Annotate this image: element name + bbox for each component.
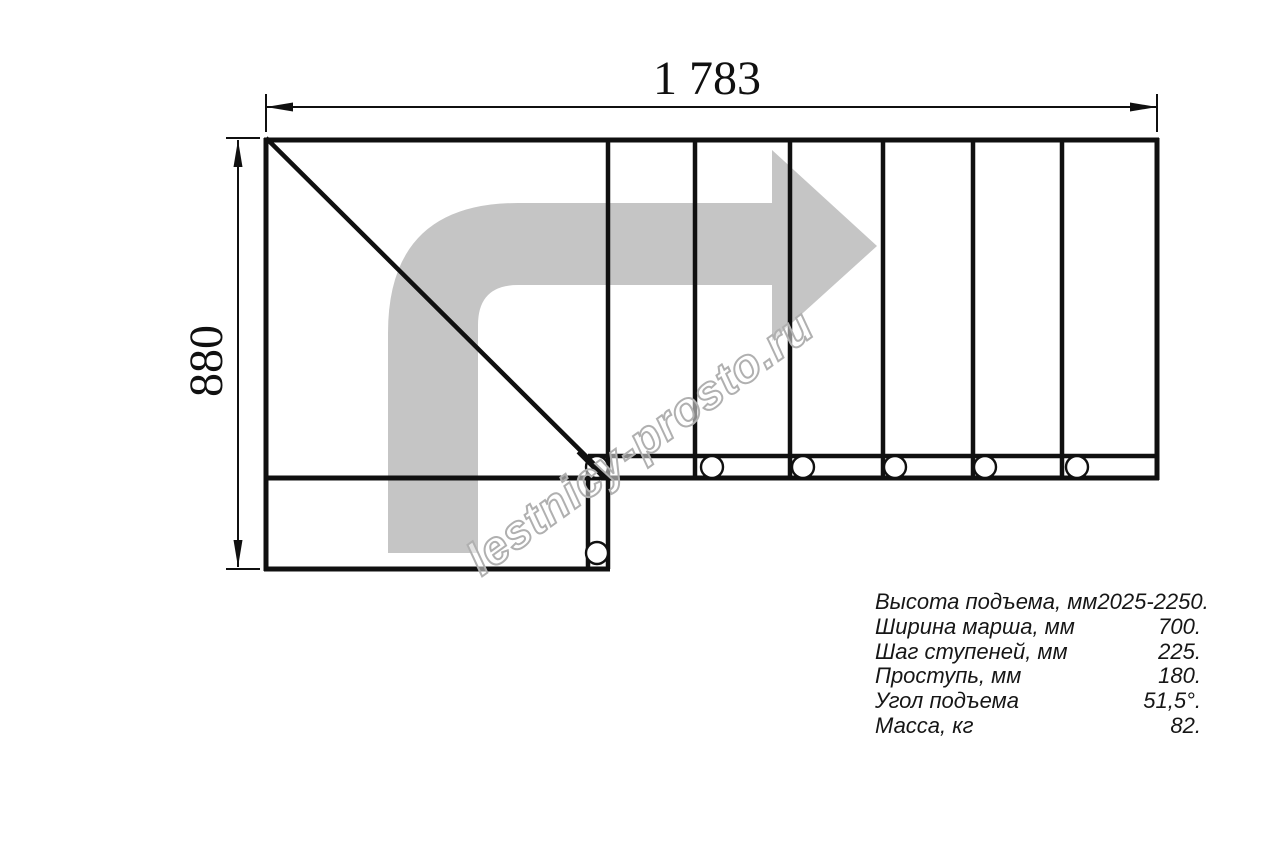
- spec-label: Высота подъема, мм: [875, 590, 1097, 615]
- spec-row: Высота подъема, мм 2025-2250.: [875, 590, 1201, 615]
- spec-value: 225.: [1158, 640, 1201, 665]
- watermark: lestnicy-prosto.ru: [456, 298, 823, 585]
- spec-label: Масса, кг: [875, 714, 974, 739]
- spec-value: 2025-2250.: [1097, 590, 1208, 615]
- left-dimension-label: 880: [180, 325, 233, 397]
- spec-value: 82.: [1170, 714, 1201, 739]
- top-dimension-label: 1 783: [653, 52, 761, 105]
- spec-row: Масса, кг 82.: [875, 714, 1201, 739]
- spec-value: 51,5°.: [1143, 689, 1201, 714]
- spec-row: Угол подъема 51,5°.: [875, 689, 1201, 714]
- spec-label: Шаг ступеней, мм: [875, 640, 1068, 665]
- spec-row: Ширина марша, мм 700.: [875, 615, 1201, 640]
- spec-row: Шаг ступеней, мм 225.: [875, 640, 1201, 665]
- spec-label: Ширина марша, мм: [875, 615, 1075, 640]
- spec-row: Проступь, мм 180.: [875, 664, 1201, 689]
- spec-label: Угол подъема: [875, 689, 1019, 714]
- dimension-lines: [226, 94, 1157, 569]
- spec-value: 180.: [1158, 664, 1201, 689]
- spec-table: Высота подъема, мм 2025-2250. Ширина мар…: [875, 590, 1201, 739]
- spec-label: Проступь, мм: [875, 664, 1021, 689]
- bolt-circle-markers: [586, 456, 1088, 564]
- stair-drawing-page: 1 783 880 lestnicy-prosto.ru Высота подъ…: [0, 0, 1280, 853]
- spec-value: 700.: [1158, 615, 1201, 640]
